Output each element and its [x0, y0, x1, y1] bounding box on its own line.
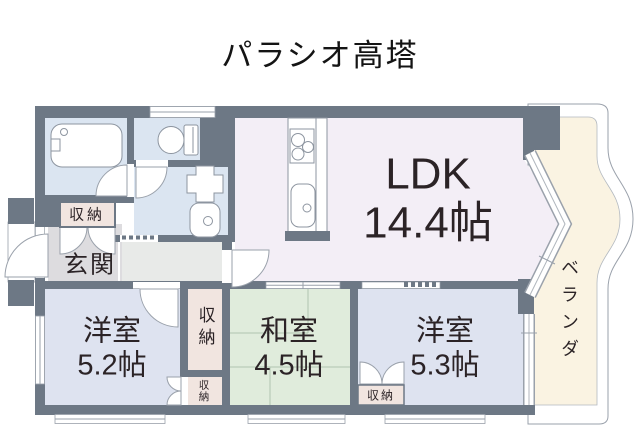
western2-room-label: 洋室 5.3帖: [410, 315, 479, 382]
western2-room-name: 洋室: [416, 315, 474, 349]
storage-low-label: 収納: [197, 380, 212, 403]
storage53-label: 収納: [367, 387, 395, 404]
ldk-room-label: LDK 14.4帖: [363, 150, 493, 249]
japanese-room-name: 和室: [260, 315, 318, 349]
kitchen-counter: [285, 118, 330, 241]
opening-western2: [362, 282, 440, 289]
kitchen-sink-icon: [291, 184, 315, 227]
stove-icon: [290, 129, 314, 163]
entrance-storage-label: 収納: [69, 204, 105, 225]
ldk-room-size: 14.4帖: [363, 199, 493, 248]
entrance-label: 玄関: [64, 245, 116, 280]
window-left: [36, 316, 45, 384]
entrance-step: [120, 235, 158, 242]
bathtub-icon: [51, 124, 122, 167]
window-bottom-2: [248, 415, 345, 424]
toilet-icon: [158, 125, 198, 155]
sliding-door-japanese: [266, 282, 340, 289]
plan-title: パラシオ高塔: [0, 30, 640, 75]
ldk-room-name: LDK: [385, 150, 471, 199]
window-bottom-3: [385, 415, 485, 424]
washbasin-icon: [190, 203, 220, 237]
veranda-label: ベランダ: [556, 258, 582, 366]
hallway-floor: [118, 242, 222, 281]
japanese-room-label: 和室 4.5帖: [254, 315, 323, 382]
japanese-room-size: 4.5帖: [254, 349, 323, 383]
western2-room-size: 5.3帖: [410, 349, 479, 383]
storage-mid-label: 収納: [193, 306, 218, 350]
western1-room-name: 洋室: [83, 315, 141, 349]
floorplan-page: パラシオ高塔 LDK 14.4帖 洋室 5.2帖 和室 4.5帖 洋室 5.3帖…: [0, 0, 640, 426]
window-bottom-1: [55, 415, 165, 424]
western1-room-label: 洋室 5.2帖: [77, 315, 146, 382]
western1-room-size: 5.2帖: [77, 349, 146, 383]
window-top: [150, 107, 215, 118]
